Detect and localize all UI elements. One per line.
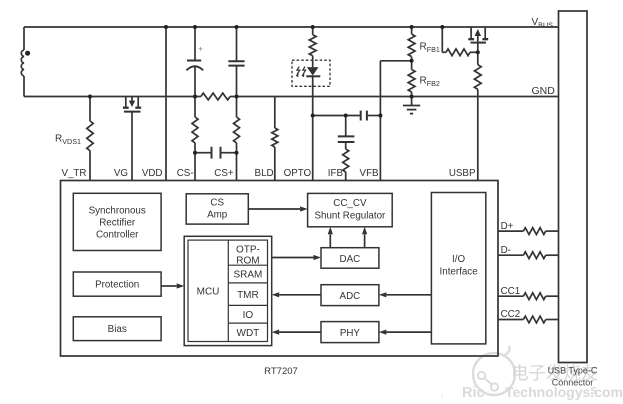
svg-text:Interface: Interface [440, 267, 479, 278]
svg-text:,: , [440, 384, 444, 399]
svg-text:CC2: CC2 [501, 309, 521, 320]
svg-text:IFB: IFB [328, 168, 344, 179]
svg-text:+: + [198, 44, 203, 54]
svg-text:CC1: CC1 [501, 286, 521, 297]
svg-text:USB Type-C: USB Type-C [548, 366, 598, 376]
svg-text:D-: D- [501, 245, 511, 256]
svg-text:BLD: BLD [255, 168, 274, 179]
svg-text:Connector: Connector [552, 378, 594, 388]
svg-text:Protection: Protection [95, 280, 139, 291]
svg-text:Ric: Ric [462, 385, 485, 401]
svg-text:SRAM: SRAM [233, 270, 262, 281]
svg-text:CS: CS [210, 198, 224, 209]
svg-text:CS-: CS- [177, 168, 194, 179]
svg-text:CC_CV: CC_CV [333, 198, 367, 209]
svg-text:WDT: WDT [237, 328, 260, 339]
svg-text:IO: IO [243, 310, 254, 321]
svg-text:DAC: DAC [340, 254, 361, 265]
svg-text:CS+: CS+ [214, 168, 234, 179]
svg-text:GND: GND [532, 85, 556, 97]
svg-text:Controller: Controller [96, 230, 139, 241]
svg-text:D+: D+ [501, 221, 514, 232]
svg-text:OTP-: OTP- [236, 244, 260, 255]
svg-text:MCU: MCU [197, 287, 220, 298]
svg-text:Shunt Regulator: Shunt Regulator [314, 211, 386, 222]
svg-text:OPTO: OPTO [284, 168, 312, 179]
svg-text:VDD: VDD [142, 168, 163, 179]
svg-text:VFB: VFB [360, 168, 380, 179]
svg-text:ROM: ROM [236, 255, 259, 266]
svg-text:Rectifier: Rectifier [99, 218, 136, 229]
svg-text:RT7207: RT7207 [264, 366, 298, 377]
svg-text:Synchronous: Synchronous [89, 206, 146, 217]
svg-text:PHY: PHY [340, 328, 361, 339]
svg-text:V_TR: V_TR [61, 168, 86, 179]
svg-text:Bias: Bias [108, 324, 127, 335]
svg-text:VG: VG [114, 168, 128, 179]
svg-text:USBP: USBP [449, 168, 476, 179]
svg-text:I/O: I/O [452, 254, 465, 265]
svg-text:ADC: ADC [340, 291, 361, 302]
svg-text:Amp: Amp [207, 210, 228, 221]
svg-text:TMR: TMR [237, 290, 259, 301]
